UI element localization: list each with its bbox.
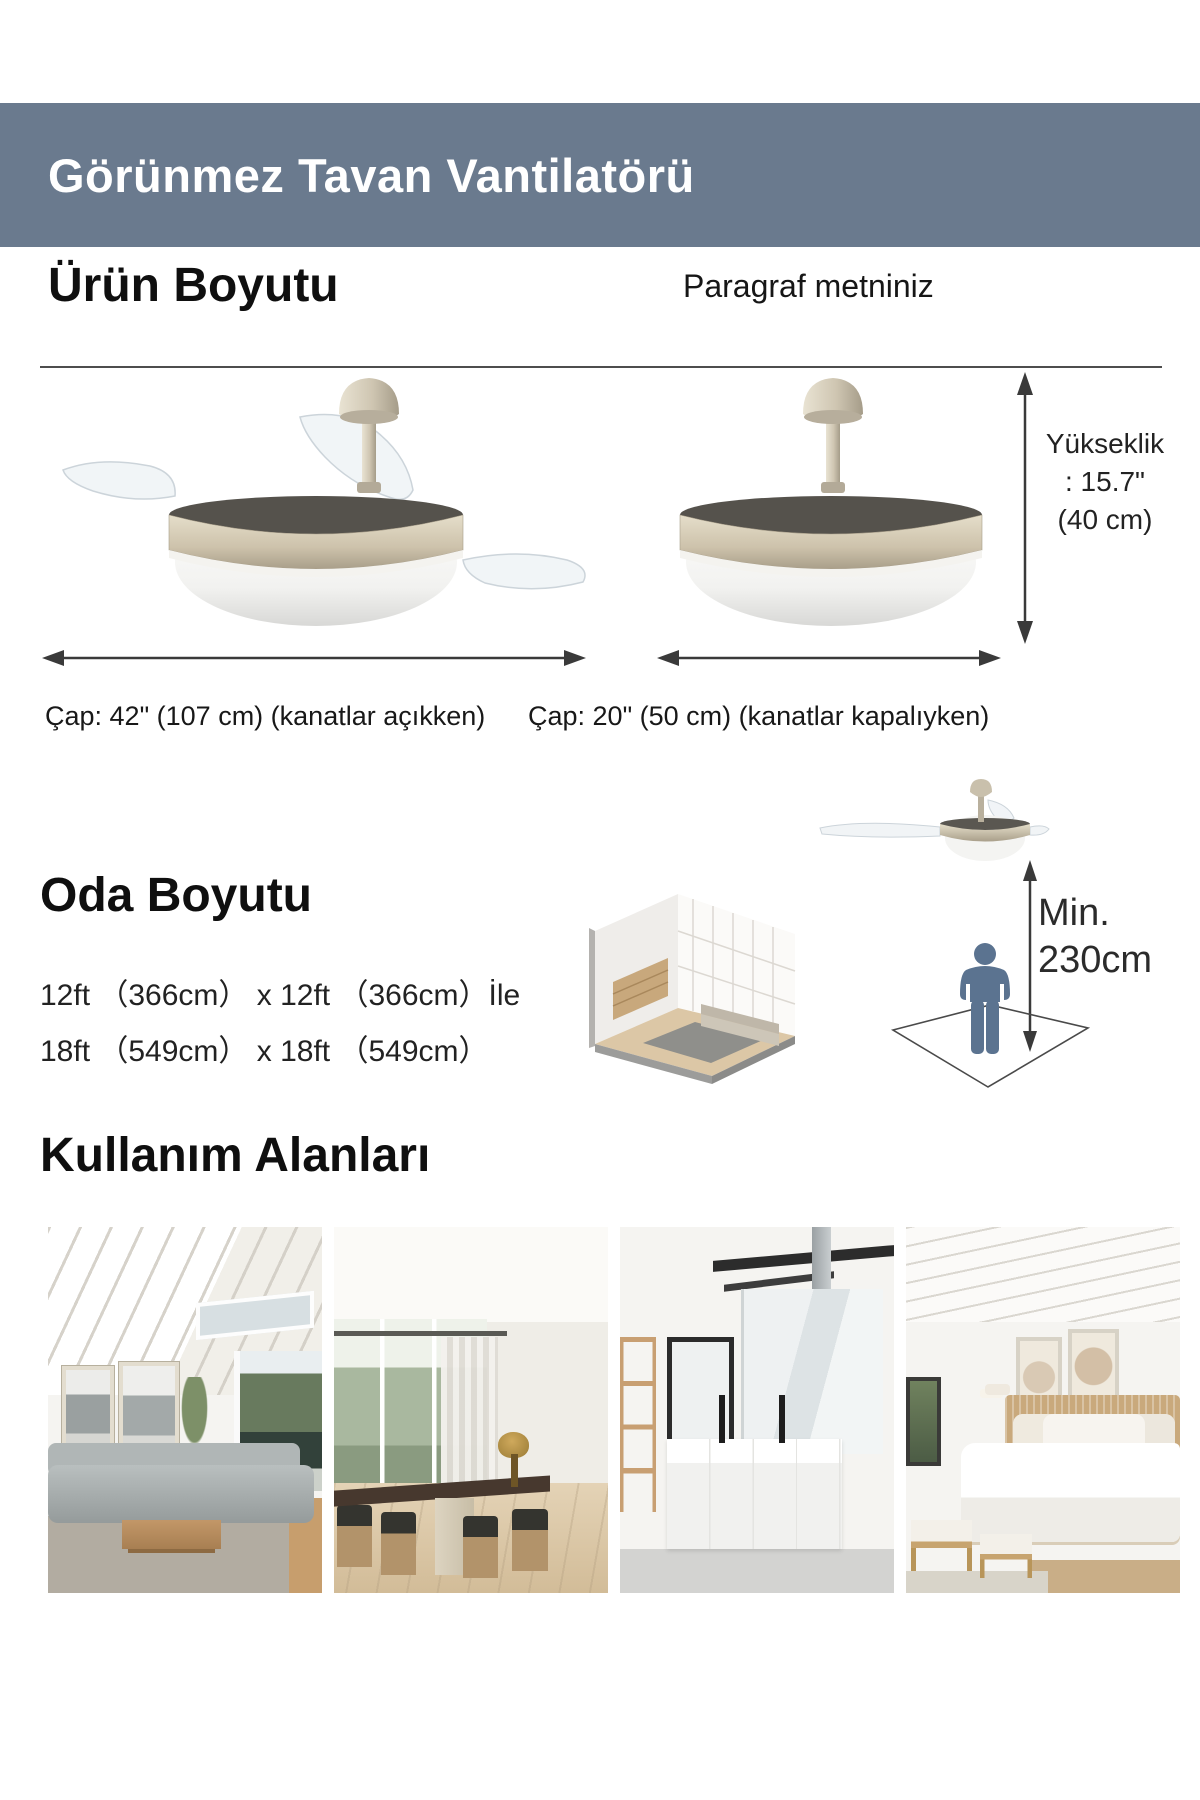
bed [961, 1443, 1180, 1542]
min-label-text: Min. [1038, 890, 1152, 937]
section-heading-usage: Kullanım Alanları [40, 1128, 430, 1183]
arrow-up-icon [1023, 860, 1037, 881]
plank-ceiling [906, 1227, 1180, 1322]
sofa [48, 1465, 314, 1524]
ceiling-track [713, 1245, 894, 1272]
fan-closed-diagram [650, 372, 1010, 634]
wall-lamp [985, 1384, 1010, 1395]
fan-downrod [362, 420, 376, 492]
bathroom-photo [620, 1227, 894, 1593]
page-title: Görünmez Tavan Vantilatörü [48, 148, 695, 203]
dining-chair [381, 1512, 417, 1574]
dining-room-photo [334, 1227, 608, 1593]
window [906, 1377, 941, 1466]
coffee-table [122, 1520, 221, 1549]
arrow-down-icon [1017, 621, 1033, 644]
divider-line [40, 366, 1162, 368]
height-label: Yükseklik : 15.7" (40 cm) [1030, 425, 1180, 539]
fan-open-diagram [55, 372, 595, 634]
fan-blade-right [463, 554, 585, 589]
dining-chair [463, 1516, 499, 1578]
fan-rod-collar [821, 482, 845, 493]
vanity-island [667, 1439, 842, 1549]
dining-chair [512, 1509, 548, 1571]
diameter-closed-arrow [655, 646, 1003, 670]
fan-downrod [978, 796, 984, 822]
usage-photo-row [48, 1227, 1180, 1593]
fan-blade-left [820, 823, 940, 837]
diameter-open-arrow [40, 646, 588, 670]
faucet [719, 1395, 725, 1443]
terrazzo-floor [620, 1549, 894, 1593]
wood-floor [1032, 1560, 1180, 1593]
bedroom-photo [906, 1227, 1180, 1593]
ladder-shelf [620, 1337, 656, 1513]
fan-canopy-base [804, 410, 862, 424]
height-label-line2: : 15.7" [1030, 463, 1180, 501]
isometric-room-illustration [583, 886, 803, 1088]
bench [980, 1534, 1032, 1578]
fan-small-diagram [818, 778, 1052, 870]
room-size-line-1: 12ft （366cm） x 12ft （366cm）İle [40, 970, 520, 1014]
arrow-left-icon [657, 650, 679, 666]
mirror-panel [741, 1289, 884, 1454]
bench [911, 1520, 971, 1571]
table-lamp-stem [511, 1454, 518, 1487]
height-label-line1: Yükseklik [1030, 425, 1180, 463]
section-heading-room-size: Oda Boyutu [40, 868, 312, 923]
header-bar: Görünmez Tavan Vantilatörü [0, 103, 1200, 247]
curtain-rod [334, 1331, 507, 1336]
arrow-right-icon [564, 650, 586, 666]
living-room-photo [48, 1227, 322, 1593]
fan-blade-left [63, 462, 175, 499]
arrow-left-icon [42, 650, 64, 666]
fan-rod-collar [357, 482, 381, 493]
fan-blade-upper [300, 415, 413, 500]
dining-chair [337, 1505, 373, 1567]
paragraph-placeholder-text: Paragraf metniniz [683, 268, 934, 305]
section-heading-product-size: Ürün Boyutu [48, 258, 339, 313]
fan-canopy-base [340, 410, 398, 424]
fan-canopy [970, 779, 992, 797]
room-wall-edge [589, 928, 595, 1048]
diameter-closed-label: Çap: 20" (50 cm) (kanatlar kapalıyken) [528, 701, 989, 732]
diameter-open-label: Çap: 42" (107 cm) (kanatlar açıkken) [45, 701, 485, 732]
fan-downrod [826, 420, 840, 492]
height-label-line3: (40 cm) [1030, 501, 1180, 539]
product-infographic: Görünmez Tavan Vantilatörü Ürün Boyutu P… [0, 0, 1200, 1800]
arrow-right-icon [979, 650, 1001, 666]
arrow-up-icon [1017, 372, 1033, 395]
fan-blade-right [1030, 826, 1049, 835]
person-floor-diagram [880, 940, 1100, 1095]
person-icon [960, 943, 1010, 1054]
faucet [779, 1395, 785, 1443]
room-size-line-2: 18ft （549cm） x 18ft （549cm） [40, 1026, 489, 1070]
